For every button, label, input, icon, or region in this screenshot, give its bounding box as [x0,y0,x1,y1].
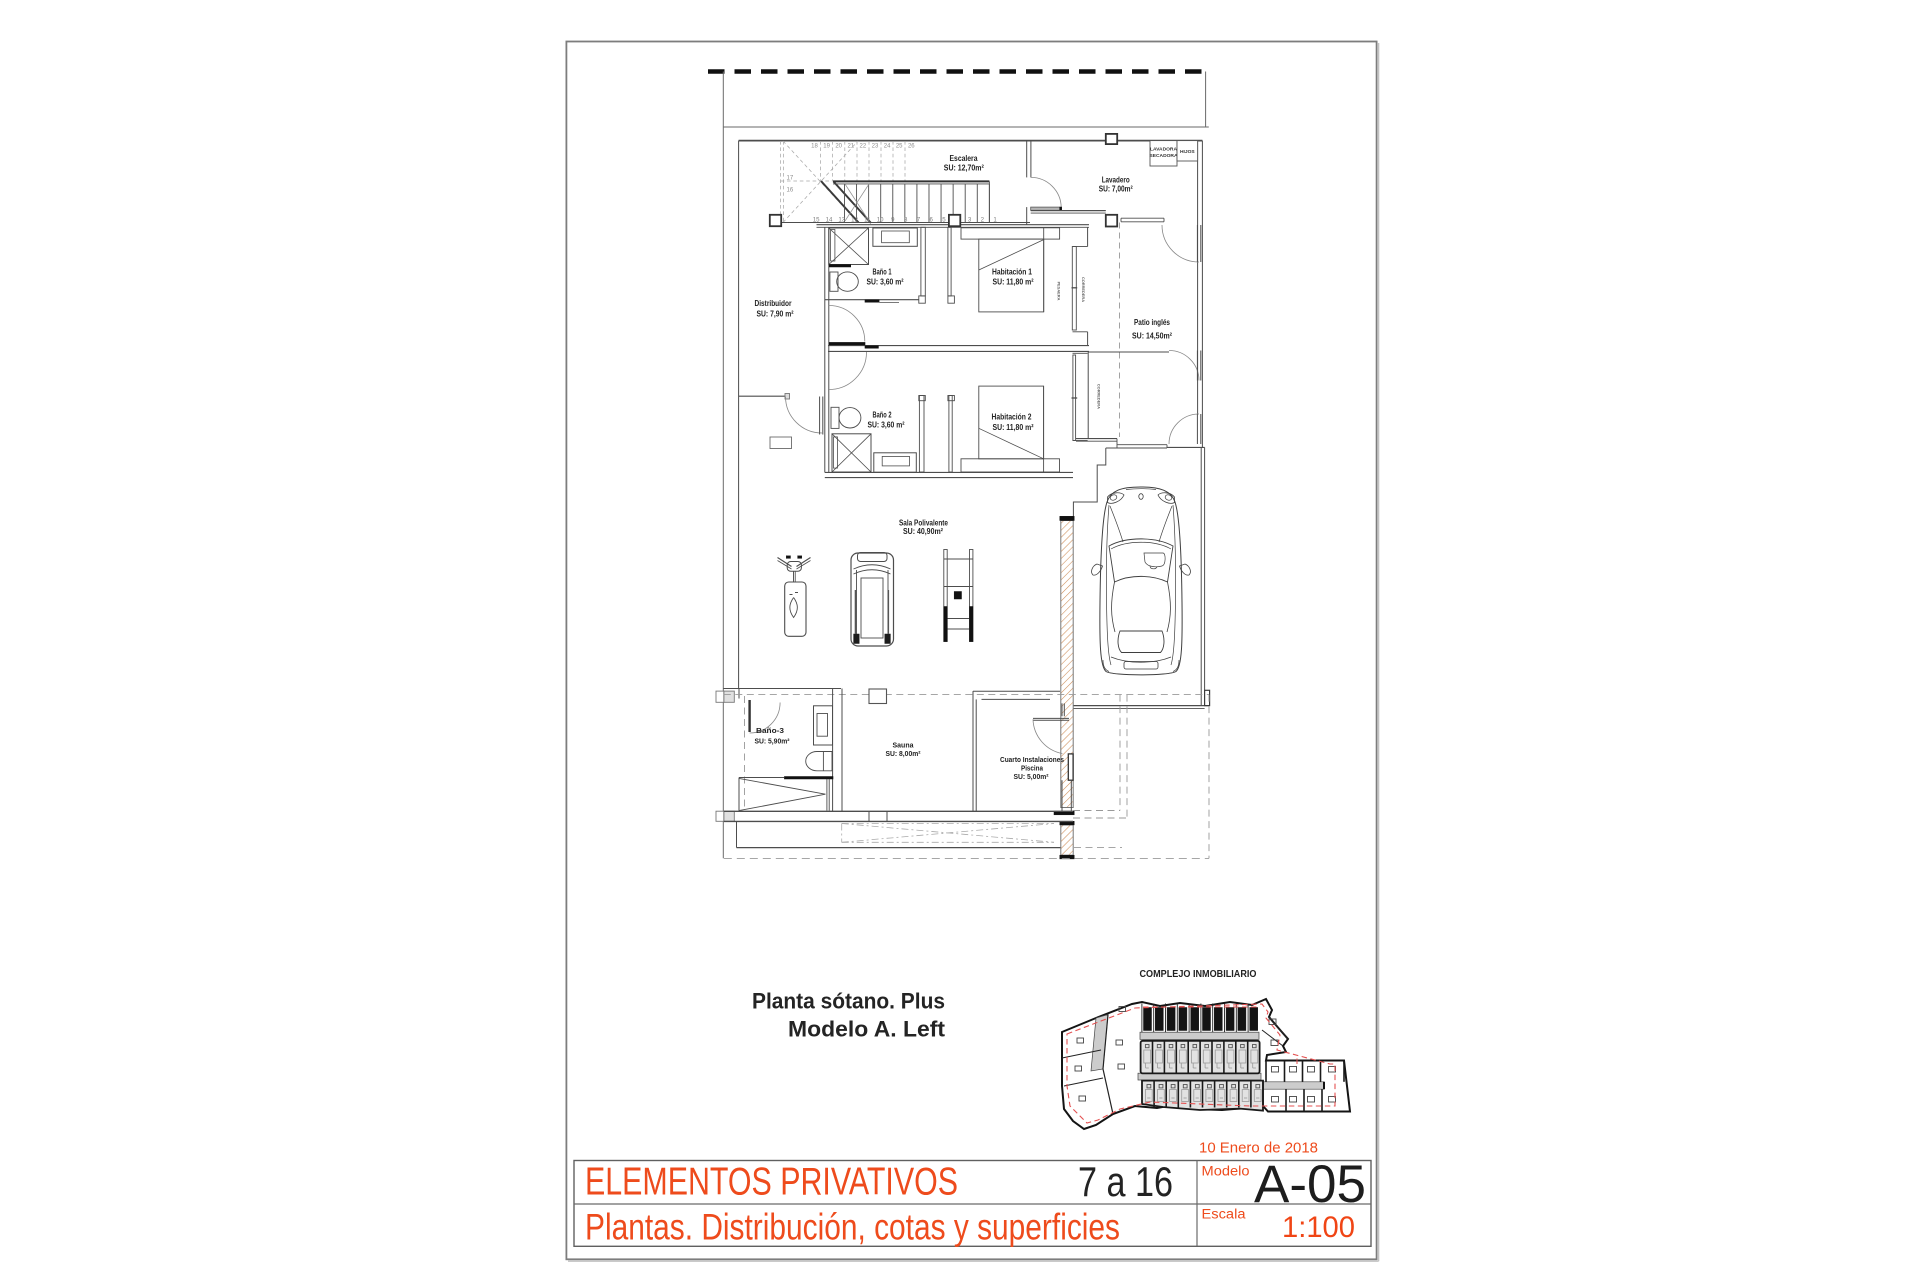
svg-text:Baño 2: Baño 2 [873,410,892,419]
svg-text:HIJOS: HIJOS [1180,149,1195,155]
svg-text:11: 11 [864,216,871,223]
svg-text:Lavadero: Lavadero [1102,176,1130,185]
svg-text:A-05: A-05 [1254,1155,1366,1214]
svg-text:SU: 3,60 m²: SU: 3,60 m² [868,421,905,430]
svg-text:26: 26 [908,144,915,150]
svg-text:19: 19 [823,144,830,150]
svg-text:17: 17 [787,176,794,182]
svg-text:Modelo A. Left: Modelo A. Left [788,1017,946,1042]
svg-text:CORREDERA: CORREDERA [1081,277,1086,302]
svg-text:Modelo: Modelo [1202,1164,1250,1179]
svg-text:1: 1 [993,216,997,223]
svg-text:PESAERA: PESAERA [1057,282,1062,301]
svg-text:22: 22 [860,144,867,150]
svg-text:16: 16 [787,188,794,194]
svg-text:Escala: Escala [1202,1207,1247,1222]
svg-text:SU: 5,00m²: SU: 5,00m² [1014,774,1050,781]
svg-text:SU: 5,90m²: SU: 5,90m² [755,737,791,746]
svg-text:Habitación 2: Habitación 2 [992,412,1033,421]
svg-text:SU: 14,50m²: SU: 14,50m² [1132,332,1172,341]
svg-text:15: 15 [813,216,820,223]
svg-text:SU: 7,00m²: SU: 7,00m² [1099,185,1133,194]
svg-text:SU: 7,90 m²: SU: 7,90 m² [757,310,794,319]
svg-text:14: 14 [826,216,833,223]
svg-text:ELEMENTOS PRIVATIVOS: ELEMENTOS PRIVATIVOS [585,1161,958,1204]
svg-text:13: 13 [838,216,845,223]
svg-text:Distribuidor: Distribuidor [755,299,792,308]
svg-text:Planta sótano. Plus: Planta sótano. Plus [752,989,945,1014]
svg-text:CORREDERA: CORREDERA [1097,384,1102,409]
svg-text:Habitación 1: Habitación 1 [992,268,1033,277]
svg-text:Plantas. Distribución, cotas y: Plantas. Distribución, cotas y superfici… [585,1207,1120,1248]
svg-text:SU: 11,80 m²: SU: 11,80 m² [993,278,1034,287]
svg-text:20: 20 [835,144,842,150]
svg-text:SU: 3,60 m²: SU: 3,60 m² [867,278,904,287]
svg-text:23: 23 [872,144,879,150]
svg-text:Baño 1: Baño 1 [873,267,892,276]
svg-text:18: 18 [811,144,818,150]
svg-text:SU: 8,00m²: SU: 8,00m² [886,749,922,758]
svg-text:SECADORA: SECADORA [1150,153,1178,159]
svg-text:COMPLEJO INMOBILIARIO: COMPLEJO INMOBILIARIO [1140,968,1257,980]
svg-text:24: 24 [884,144,891,150]
svg-text:Piscina: Piscina [1021,766,1043,773]
svg-text:12: 12 [851,216,858,223]
svg-text:SU: 12,70m²: SU: 12,70m² [944,164,984,173]
svg-text:SU: 11,80 m²: SU: 11,80 m² [993,423,1034,432]
svg-text:21: 21 [847,144,854,150]
svg-text:SU: 40,90m²: SU: 40,90m² [903,527,943,536]
svg-text:Escalera: Escalera [950,154,979,163]
svg-text:Patio inglés: Patio inglés [1134,318,1171,327]
svg-text:25: 25 [896,144,903,150]
svg-text:Baño-3: Baño-3 [756,726,784,735]
svg-text:10: 10 [877,216,884,223]
svg-text:3: 3 [968,216,972,223]
svg-text:2: 2 [981,216,985,223]
svg-text:1:100: 1:100 [1282,1211,1355,1244]
svg-text:7 a 16: 7 a 16 [1078,1158,1173,1205]
svg-text:Cuarto Instalaciones: Cuarto Instalaciones [1000,757,1064,764]
svg-text:LAVADORA: LAVADORA [1150,147,1177,153]
